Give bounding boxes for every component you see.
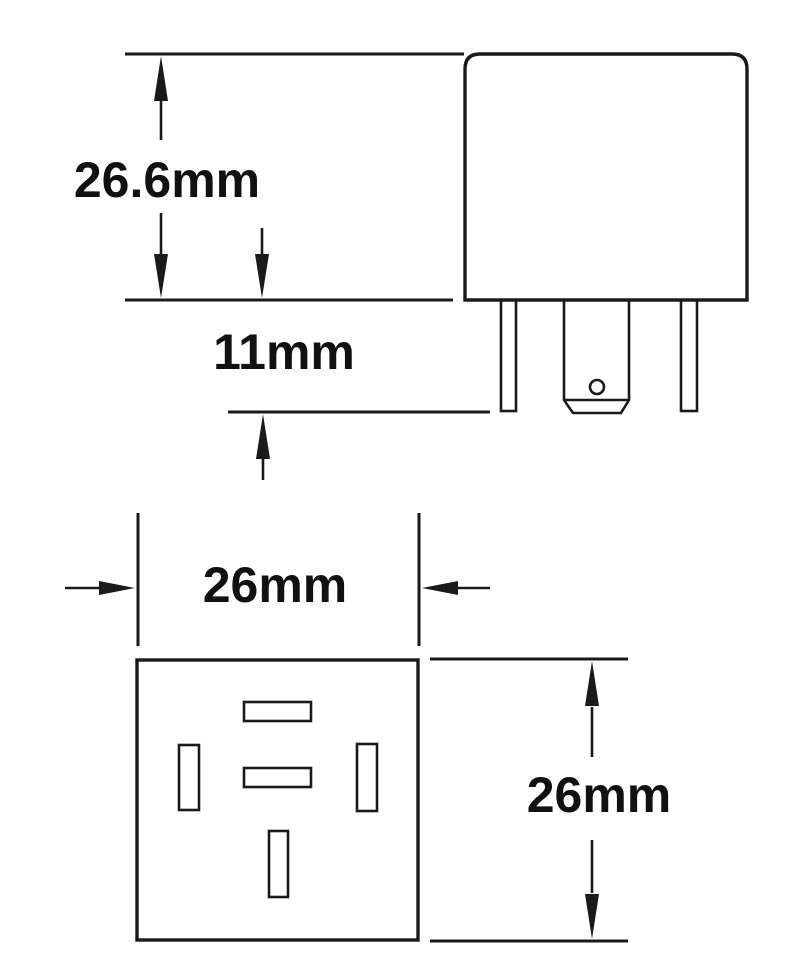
- dimension-body-height: 26.6mm: [74, 54, 464, 300]
- terminal-slot-center: [244, 768, 311, 787]
- terminal-slot-right: [357, 744, 377, 811]
- relay-dimension-diagram: 26.6mm 11mm 26mm: [0, 0, 800, 955]
- relay-body-outline: [465, 54, 747, 300]
- dimension-base-width: 26mm: [65, 513, 490, 646]
- relay-side-view: [465, 54, 747, 413]
- dimension-base-height: 26mm: [430, 659, 671, 941]
- relay-pin-left: [501, 300, 516, 411]
- relay-pin-center: [564, 300, 629, 413]
- arrow-down-icon: [255, 254, 269, 298]
- dimension-pin-length: 11mm: [213, 228, 490, 480]
- base-width-label: 26mm: [203, 557, 348, 613]
- relay-bottom-view: [137, 660, 418, 940]
- terminal-slot-top: [244, 702, 311, 721]
- pin-hole: [590, 380, 604, 394]
- terminal-slot-left: [179, 745, 199, 810]
- arrow-right-icon: [99, 581, 135, 595]
- arrow-up-icon: [585, 661, 599, 706]
- diagram-canvas: 26.6mm 11mm 26mm: [0, 0, 800, 955]
- arrow-up-icon: [256, 414, 270, 459]
- arrow-up-icon: [154, 56, 168, 101]
- pin-length-label: 11mm: [213, 324, 355, 380]
- arrow-left-icon: [422, 581, 458, 595]
- relay-pin-right: [681, 300, 697, 411]
- base-height-label: 26mm: [527, 767, 672, 823]
- arrow-down-icon: [154, 254, 168, 298]
- body-height-label: 26.6mm: [74, 152, 260, 208]
- terminal-slot-bottom: [269, 831, 288, 897]
- arrow-down-icon: [585, 894, 599, 939]
